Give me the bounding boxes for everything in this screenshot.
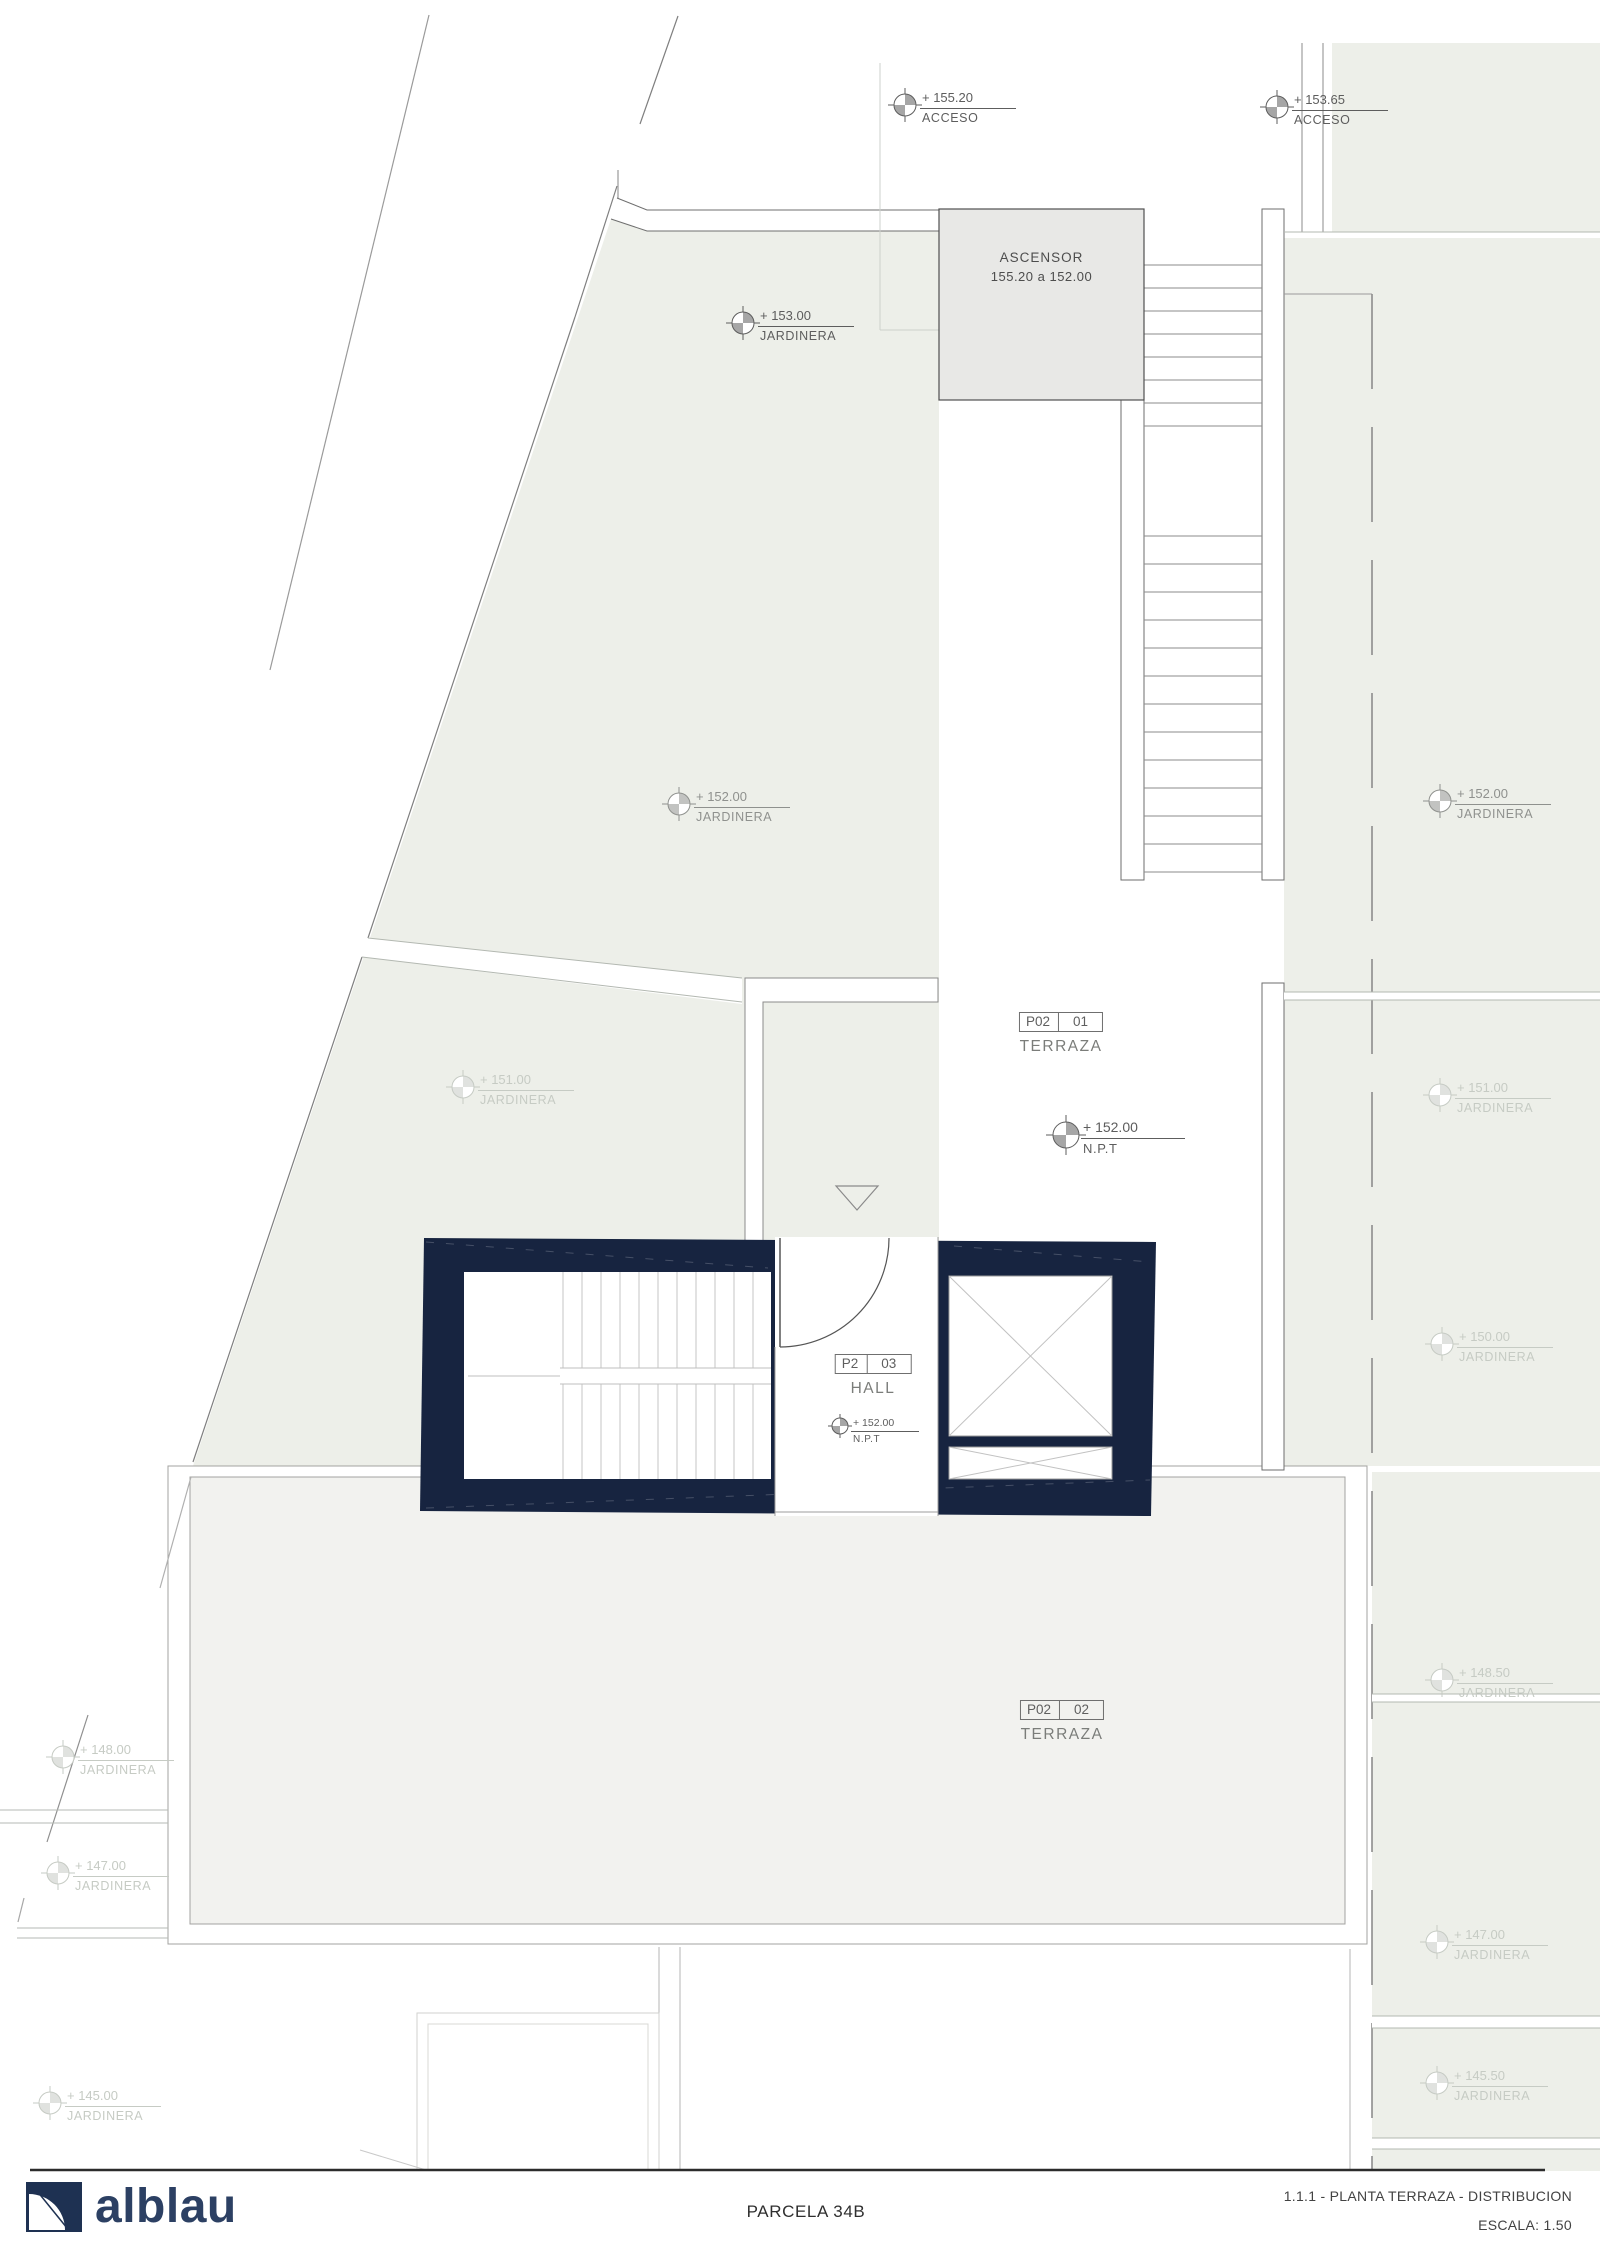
ascensor-label: ASCENSOR 155.20 a 152.00 (939, 250, 1144, 284)
stairs-top (1144, 265, 1262, 872)
sheet-scale: ESCALA: 1.50 (1284, 2217, 1572, 2233)
sheet-title: 1.1.1 - PLANTA TERRAZA - DISTRIBUCION (1284, 2188, 1572, 2204)
room-label: P2 03 HALL (835, 1354, 912, 1398)
room-name: HALL (835, 1380, 912, 1398)
room-code-floor: P2 (836, 1355, 868, 1373)
room-code-number: 02 (1060, 1701, 1103, 1719)
room-code-number: 01 (1059, 1013, 1102, 1031)
building-core (420, 1237, 1156, 1516)
room-code-box: P2 03 (835, 1354, 912, 1374)
room-code-box: P02 02 (1020, 1700, 1104, 1720)
room-label: P02 02 TERRAZA (1020, 1700, 1104, 1744)
ascensor-title: ASCENSOR (939, 250, 1144, 265)
room-label: P02 01 TERRAZA (1019, 1012, 1103, 1056)
room-code-box: P02 01 (1019, 1012, 1103, 1032)
parcel-label: PARCELA 34B (747, 2202, 866, 2222)
alblau-logo: alblau (26, 2182, 237, 2232)
room-name: TERRAZA (1019, 1038, 1103, 1056)
alblau-logo-icon (26, 2182, 82, 2232)
ascensor-levels: 155.20 a 152.00 (939, 269, 1144, 284)
room-name: TERRAZA (1020, 1726, 1104, 1744)
titleblock: 1.1.1 - PLANTA TERRAZA - DISTRIBUCION ES… (1284, 2188, 1572, 2233)
terrace-walls (168, 1466, 1367, 1944)
plan-linework (0, 0, 1600, 2263)
room-code-floor: P02 (1021, 1701, 1060, 1719)
logo-wordmark: alblau (95, 2183, 237, 2231)
floor-plan-sheet: ASCENSOR 155.20 a 152.00 + 155.20 ACCESO… (0, 0, 1600, 2263)
elevator-box-top (939, 209, 1144, 400)
room-code-number: 03 (867, 1355, 910, 1373)
room-code-floor: P02 (1020, 1013, 1059, 1031)
